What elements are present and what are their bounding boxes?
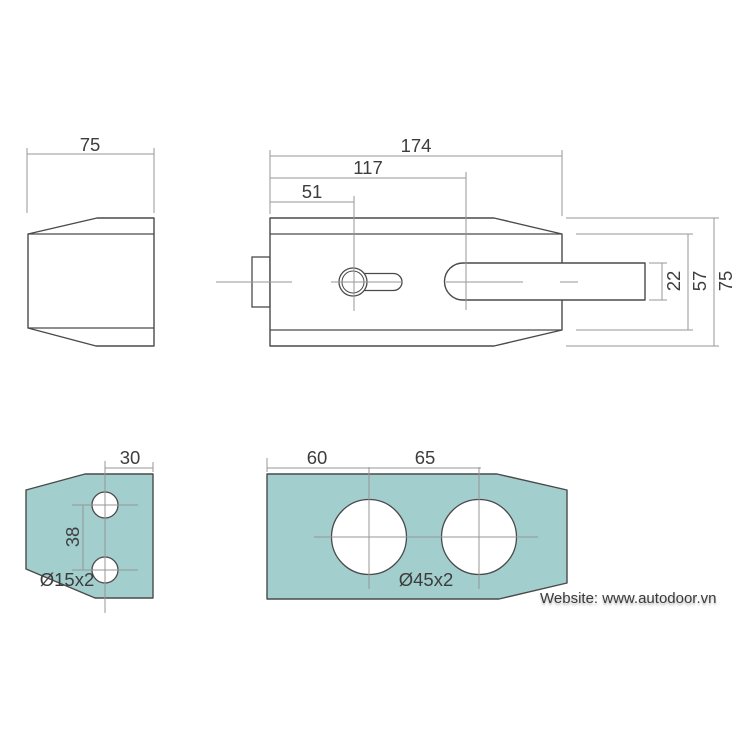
dim-label-strike-spacing: 38 xyxy=(62,527,83,548)
label-strike-hole-size: Ø15x2 xyxy=(40,569,95,590)
lock-technical-drawing: 75 174 117 51 22 57 75 30 38 Ø15x2 60 65… xyxy=(0,0,743,743)
label-mount-hole-size: Ø45x2 xyxy=(399,569,454,590)
dim-label-total-width: 174 xyxy=(401,135,432,156)
dim-label-strike-offset: 30 xyxy=(120,447,141,468)
website-label: Website: www.autodoor.vn xyxy=(540,590,716,607)
dim-label-mount-left: 60 xyxy=(307,447,328,468)
dim-label-inner-height: 57 xyxy=(689,271,710,292)
dim-lines-side-view xyxy=(27,148,154,213)
dim-label-keyhole-offset: 51 xyxy=(302,181,323,202)
side-view-outline xyxy=(28,218,154,346)
dim-label-bolt-center: 117 xyxy=(353,157,383,178)
technical-drawing-page: 75 174 117 51 22 57 75 30 38 Ø15x2 60 65… xyxy=(0,0,743,743)
dim-label-total-height: 75 xyxy=(715,271,736,292)
dim-label-mount-spacing: 65 xyxy=(415,447,436,468)
dim-label-bolt-height: 22 xyxy=(663,271,684,292)
dim-label-side-width: 75 xyxy=(80,134,101,155)
